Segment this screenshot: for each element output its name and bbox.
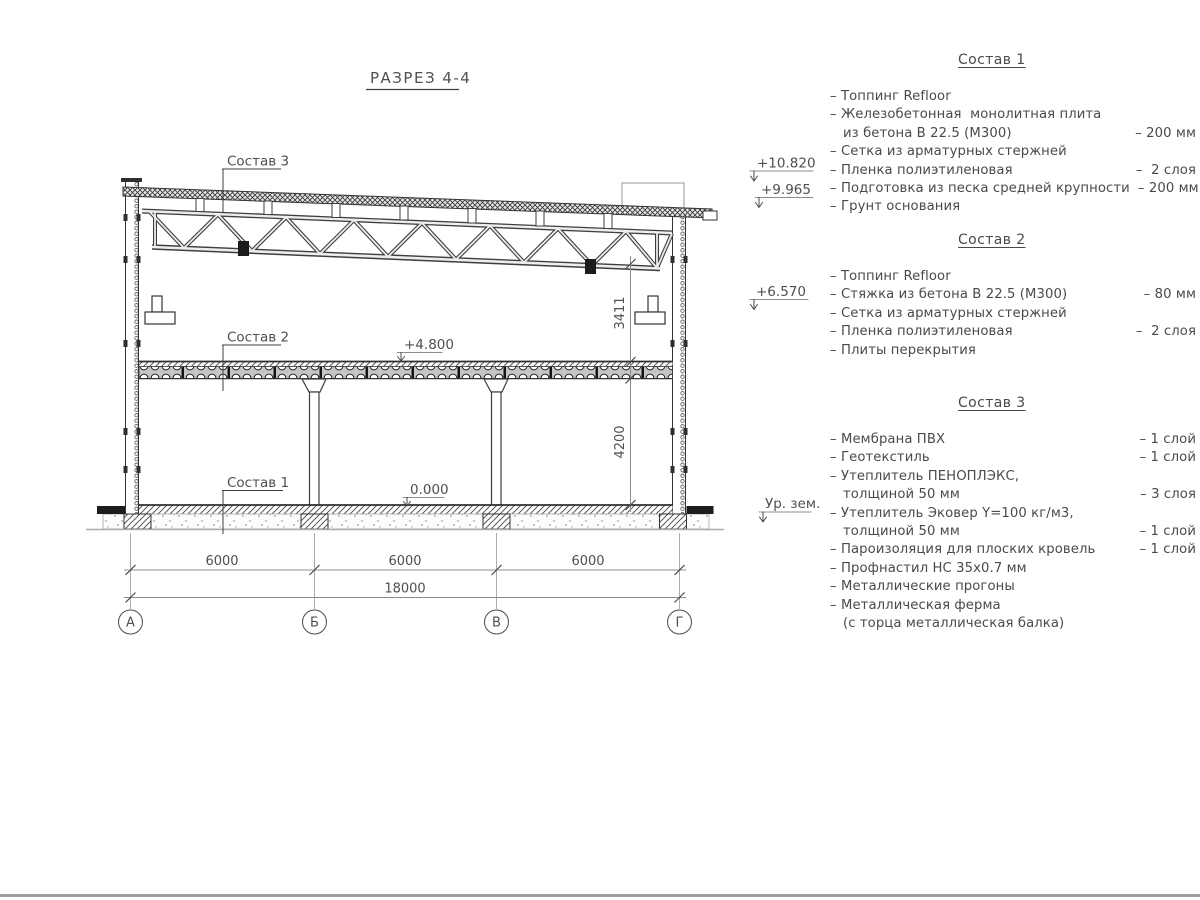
section-title: РАЗРЕЗ 4-4 — [366, 69, 471, 90]
note-item: – Утеплитель Эковер Y=100 кг/м3,толщиной… — [830, 505, 1196, 542]
foundation-B — [301, 514, 328, 529]
note-item-text-continued: из бетона В 22.5 (М300)– 200 мм — [830, 125, 1196, 143]
notes-panel: Состав 1 – Топпинг Refloor– Железобетонн… — [830, 0, 1196, 700]
elevation-floor2: +4.800 — [397, 337, 454, 361]
svg-text:+10.820: +10.820 — [757, 156, 816, 172]
elevation-floor1: 0.000 — [403, 482, 449, 506]
dim-bay3: 6000 — [571, 554, 604, 569]
note-item-text: – Сетка из арматурных стержней — [830, 143, 1196, 161]
column-V — [492, 392, 502, 505]
ground-floor — [86, 505, 724, 530]
elevation-parapet: +10.820 — [750, 156, 816, 182]
note-item: – Пароизоляция для плоских кровель– 1 сл… — [830, 541, 1196, 559]
grid-bubbles: А Б В Г — [119, 610, 692, 634]
note-item-text: – Утеплитель Эковер Y=100 кг/м3, — [830, 505, 1196, 523]
axis-A: А — [126, 616, 135, 631]
dim-story-height: 4200 — [613, 425, 628, 458]
note-item: – Топпинг Refloor — [830, 88, 1196, 106]
note-item: – Профнастил НС 35х0.7 мм — [830, 560, 1196, 578]
end-wall-beam-outline — [622, 183, 684, 209]
note-item-value: – 200 мм — [1130, 180, 1199, 198]
note-item-text-continued: толщиной 50 мм– 1 слой — [830, 523, 1196, 541]
note-item: – Металлическая ферма(с торца металличес… — [830, 597, 1196, 634]
note-item-text: – Металлические прогоны — [830, 578, 1196, 596]
composition-1-heading: Состав 1 — [958, 51, 1026, 69]
note-item: – Металлические прогоны — [830, 578, 1196, 596]
note-item-text: – Плиты перекрытия — [830, 342, 1196, 360]
elevation-roof: +9.965 — [755, 182, 813, 208]
foundation-A — [124, 514, 151, 529]
composition-1: Состав 1 – Топпинг Refloor– Железобетонн… — [830, 51, 1196, 217]
axis-B: Б — [310, 616, 319, 631]
foundation-G — [660, 514, 687, 529]
elevation-ground: Ур. зем. — [759, 496, 820, 522]
note-item-value: – 2 слоя — [1128, 323, 1196, 341]
crane-bracket-right — [635, 296, 665, 324]
note-item-value: – 1 слой — [1132, 523, 1197, 541]
note-item-value: – 200 мм — [1127, 125, 1196, 143]
note-item-text-continued: (с торца металлическая балка) — [830, 615, 1196, 633]
apron-left — [97, 506, 125, 514]
note-item: – Грунт основания — [830, 198, 1196, 216]
note-item-text: – Пароизоляция для плоских кровель– 1 сл… — [830, 541, 1196, 559]
composition-3-heading: Состав 3 — [958, 394, 1026, 412]
note-item-text: – Топпинг Refloor — [830, 268, 1196, 286]
note-item: – Сетка из арматурных стержней — [830, 305, 1196, 323]
label-roof-layers: Состав 3 — [222, 154, 289, 213]
axis-G: Г — [676, 616, 684, 631]
note-item: – Мембрана ПВХ– 1 слой — [830, 431, 1196, 449]
chord-splice — [238, 241, 249, 256]
note-item: – Утеплитель ПЕНОПЛЭКС,толщиной 50 мм– 3… — [830, 468, 1196, 505]
note-item: – Пленка полиэтиленовая– 2 слоя — [830, 323, 1196, 341]
note-item: – Геотекстиль– 1 слой — [830, 449, 1196, 467]
composition-2-heading: Состав 2 — [958, 231, 1026, 249]
sheet-bottom-border — [0, 894, 1200, 897]
dim-bay2: 6000 — [388, 554, 421, 569]
note-item: – Сетка из арматурных стержней — [830, 143, 1196, 161]
note-item: – Железобетонная монолитная плитаиз бето… — [830, 106, 1196, 143]
composition-3: Состав 3 – Мембрана ПВХ– 1 слой– Геотекс… — [830, 394, 1196, 633]
columns — [302, 379, 508, 505]
note-item-value: – 1 слой — [1132, 431, 1197, 449]
note-item-value: – 2 слоя — [1128, 162, 1196, 180]
column-capital — [484, 379, 508, 392]
axis-V: В — [492, 616, 501, 631]
note-item-text: – Утеплитель ПЕНОПЛЭКС, — [830, 468, 1196, 486]
note-item-text: – Профнастил НС 35х0.7 мм — [830, 560, 1196, 578]
dimensions-horizontal: 6000 6000 6000 18000 — [124, 554, 686, 603]
note-item: – Топпинг Refloor — [830, 268, 1196, 286]
svg-text:Состав 2: Состав 2 — [227, 330, 289, 346]
note-item-text: – Сетка из арматурных стержней — [830, 305, 1196, 323]
svg-text:РАЗРЕЗ 4-4: РАЗРЕЗ 4-4 — [370, 69, 471, 87]
note-item-text: – Топпинг Refloor — [830, 88, 1196, 106]
note-item-value: – 1 слой — [1132, 449, 1197, 467]
composition-2-items: – Топпинг Refloor– Стяжка из бетона В 22… — [830, 268, 1196, 360]
dim-bay1: 6000 — [205, 554, 238, 569]
note-item: – Пленка полиэтиленовая– 2 слоя — [830, 162, 1196, 180]
note-item-value: – 80 мм — [1136, 286, 1196, 304]
svg-text:0.000: 0.000 — [410, 482, 449, 498]
svg-text:+6.570: +6.570 — [756, 284, 806, 300]
drawing-sheet: РАЗРЕЗ 4-4 — [0, 0, 1200, 900]
dim-truss-clearance: 3411 — [613, 296, 628, 329]
note-item-text: – Мембрана ПВХ– 1 слой — [830, 431, 1196, 449]
composition-2: Состав 2 – Топпинг Refloor– Стяжка из бе… — [830, 231, 1196, 360]
svg-text:Ур. зем.: Ур. зем. — [765, 496, 820, 512]
label-floor2-layers: Состав 2 — [222, 330, 289, 392]
note-item-text: – Металлическая ферма — [830, 597, 1196, 615]
column-capital — [302, 379, 326, 392]
note-item-text: – Подготовка из песка средней крупности–… — [830, 180, 1196, 198]
note-item-text: – Геотекстиль– 1 слой — [830, 449, 1196, 467]
note-item-value: – 3 слоя — [1132, 486, 1196, 504]
dimensions-vertical: 3411 4200 — [613, 256, 636, 512]
svg-text:+4.800: +4.800 — [404, 337, 454, 353]
composition-3-items: – Мембрана ПВХ– 1 слой– Геотекстиль– 1 с… — [830, 431, 1196, 633]
apron-right — [687, 506, 714, 514]
note-item: – Стяжка из бетона В 22.5 (М300)– 80 мм — [830, 286, 1196, 304]
elevation-bracket: +6.570 — [750, 284, 808, 310]
crane-bracket-left — [145, 296, 175, 324]
note-item-value: – 1 слой — [1132, 541, 1197, 559]
note-item-text: – Грунт основания — [830, 198, 1196, 216]
roof-edge-detail — [703, 211, 717, 220]
note-item-text-continued: толщиной 50 мм– 3 слоя — [830, 486, 1196, 504]
dim-total: 18000 — [384, 582, 425, 597]
column-B — [310, 392, 320, 505]
note-item: – Плиты перекрытия — [830, 342, 1196, 360]
note-item-text: – Железобетонная монолитная плита — [830, 106, 1196, 124]
foundation-V — [483, 514, 510, 529]
svg-text:+9.965: +9.965 — [761, 182, 811, 198]
floor2-slab — [139, 362, 673, 379]
note-item-text: – Пленка полиэтиленовая– 2 слоя — [830, 162, 1196, 180]
note-item-text: – Стяжка из бетона В 22.5 (М300)– 80 мм — [830, 286, 1196, 304]
svg-text:Состав 1: Состав 1 — [227, 475, 289, 491]
note-item-text: – Пленка полиэтиленовая– 2 слоя — [830, 323, 1196, 341]
layer-labels: Состав 3 Состав 2 Состав 1 — [222, 154, 289, 535]
note-item: – Подготовка из песка средней крупности–… — [830, 180, 1196, 198]
svg-text:Состав 3: Состав 3 — [227, 154, 289, 170]
chord-splice — [585, 259, 596, 274]
composition-1-items: – Топпинг Refloor– Железобетонная моноли… — [830, 88, 1196, 217]
